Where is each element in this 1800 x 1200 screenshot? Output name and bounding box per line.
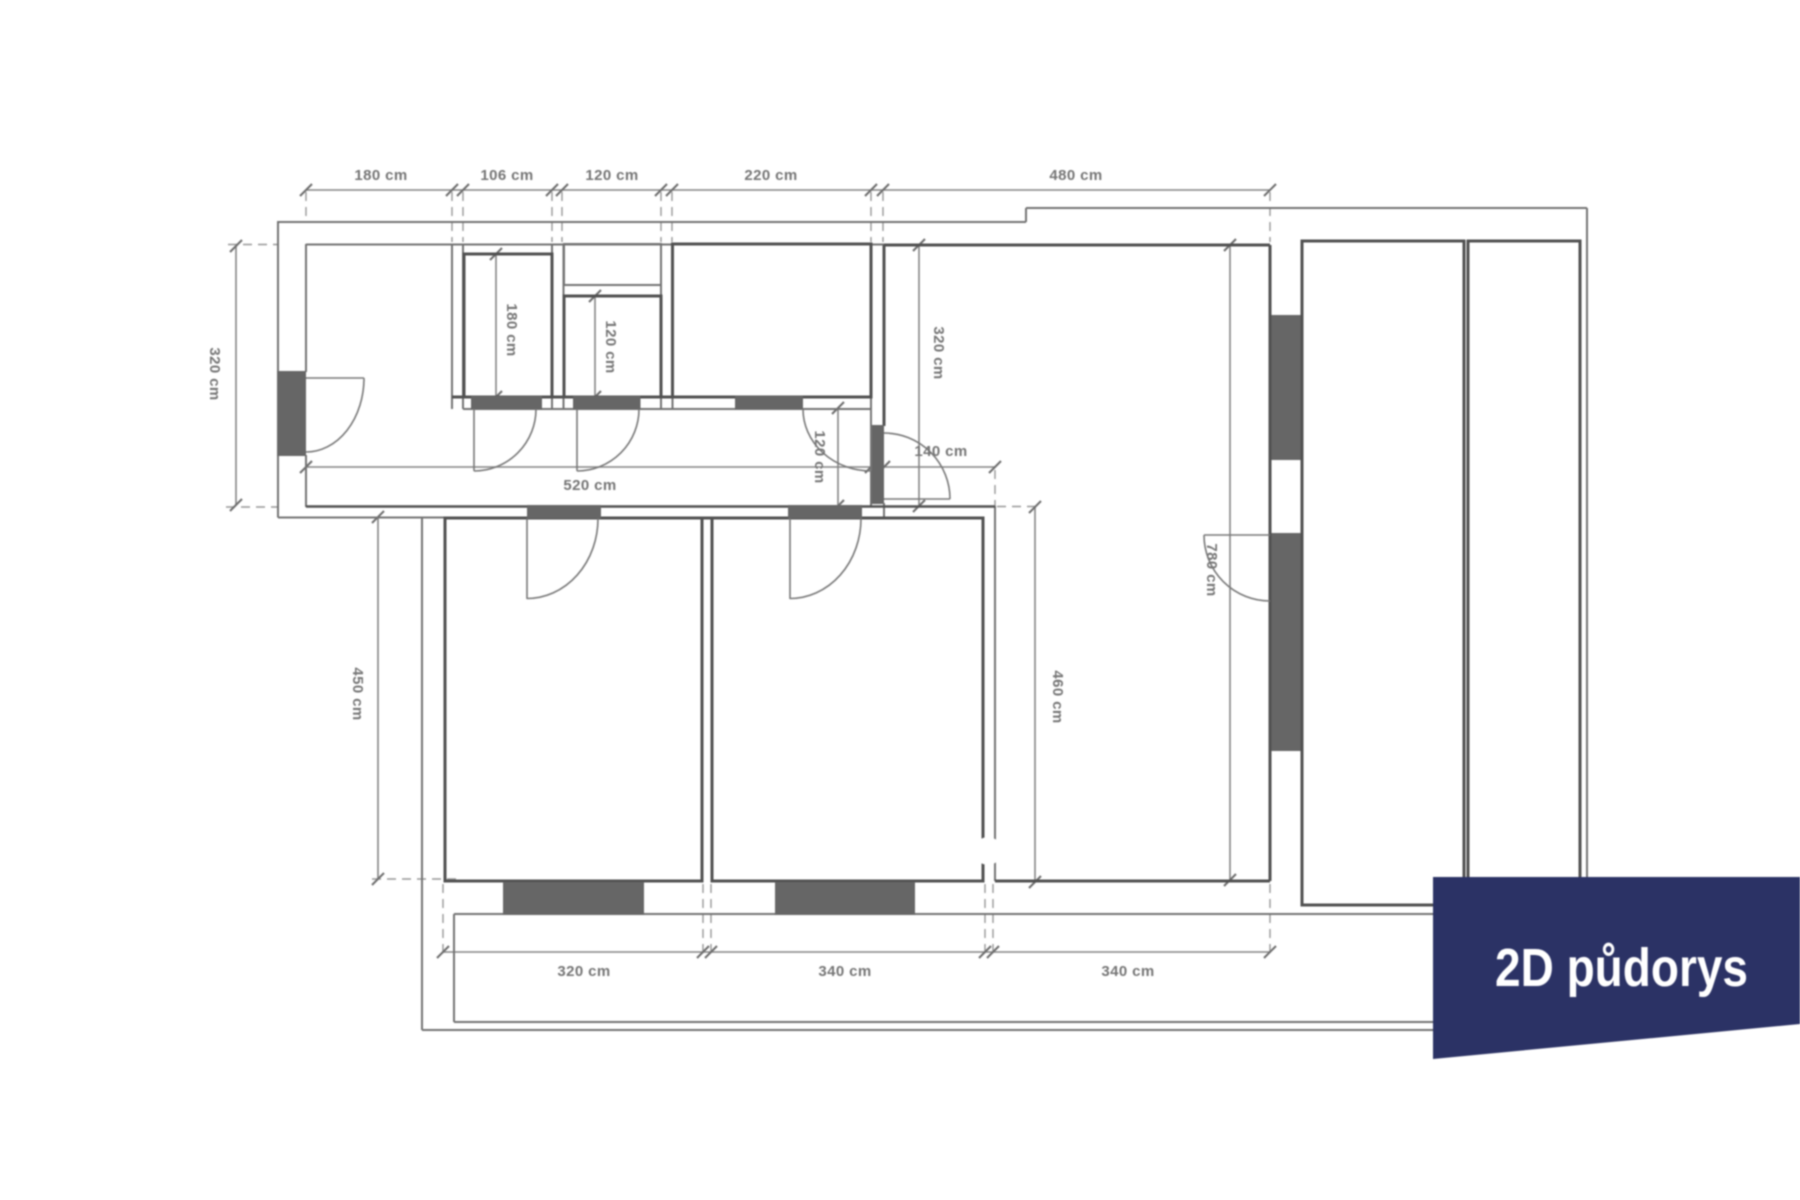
svg-text:340 cm: 340 cm xyxy=(818,963,871,980)
svg-text:460 cm: 460 cm xyxy=(1049,670,1066,723)
svg-text:180 cm: 180 cm xyxy=(503,303,520,356)
svg-text:120 cm: 120 cm xyxy=(602,320,619,373)
svg-text:340 cm: 340 cm xyxy=(1101,963,1154,980)
svg-text:780 cm: 780 cm xyxy=(1203,543,1220,596)
svg-text:140 cm: 140 cm xyxy=(914,443,967,460)
svg-text:450 cm: 450 cm xyxy=(349,667,366,720)
svg-text:106 cm: 106 cm xyxy=(480,167,533,184)
svg-text:520 cm: 520 cm xyxy=(563,477,616,494)
svg-text:120 cm: 120 cm xyxy=(585,167,638,184)
svg-text:2D půdorys: 2D půdorys xyxy=(1495,938,1748,998)
svg-text:320 cm: 320 cm xyxy=(206,347,223,400)
svg-text:180 cm: 180 cm xyxy=(354,167,407,184)
svg-text:220 cm: 220 cm xyxy=(744,167,797,184)
svg-text:320 cm: 320 cm xyxy=(557,963,610,980)
svg-text:120 cm: 120 cm xyxy=(811,430,828,483)
svg-text:320 cm: 320 cm xyxy=(930,326,947,379)
svg-text:480 cm: 480 cm xyxy=(1049,167,1102,184)
